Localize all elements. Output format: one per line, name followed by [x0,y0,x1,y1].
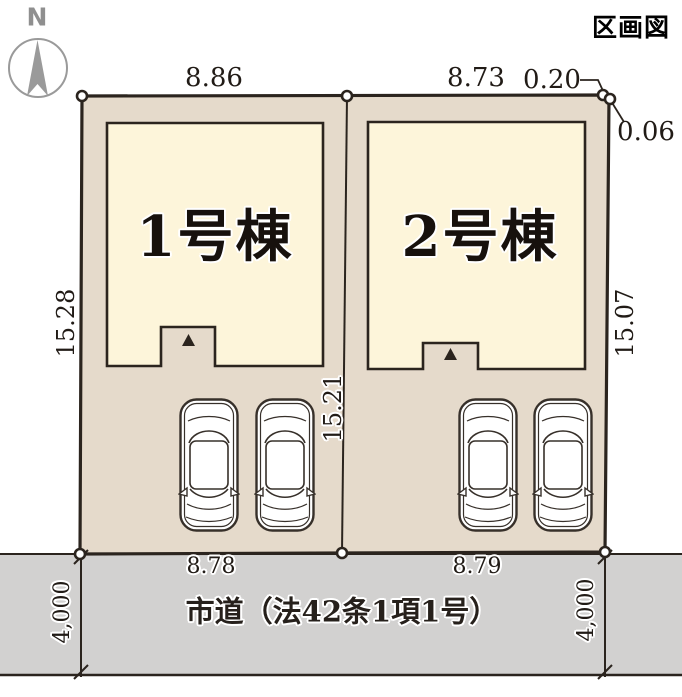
compass [9,39,67,97]
dim-corner-offset-h: 0.20 [523,67,581,93]
page-title: 区画図 [592,8,670,44]
dim-plot2-top: 8.73 [447,65,505,91]
car-icon [179,400,239,531]
road-width-right-label: 4,000 [576,579,598,642]
dim-plot1-right: 15.21 [321,374,345,443]
dim-plot1-top: 8.86 [185,65,243,91]
dim-plot1-frontage: 8.78 [187,556,236,578]
compass-north-label: N [27,5,48,30]
road-name-label: 市道（法42条1項1号） [186,598,499,627]
plot-plan: 区画図 N 8.86 8.73 0.20 0.06 15.28 15.21 15… [0,0,682,697]
building1-label: 1号棟 [137,209,294,265]
dim-corner-offset-v: 0.06 [617,119,675,145]
car-icon [533,400,593,531]
car-icon [255,400,315,531]
dim-plot2-right: 15.07 [613,289,637,358]
car-icon [458,400,518,531]
dim-plot2-frontage: 8.79 [453,556,502,578]
building2-label: 2号棟 [402,209,559,265]
road-width-left-label: 4,000 [52,581,74,644]
dim-plot1-left: 15.28 [54,289,78,358]
